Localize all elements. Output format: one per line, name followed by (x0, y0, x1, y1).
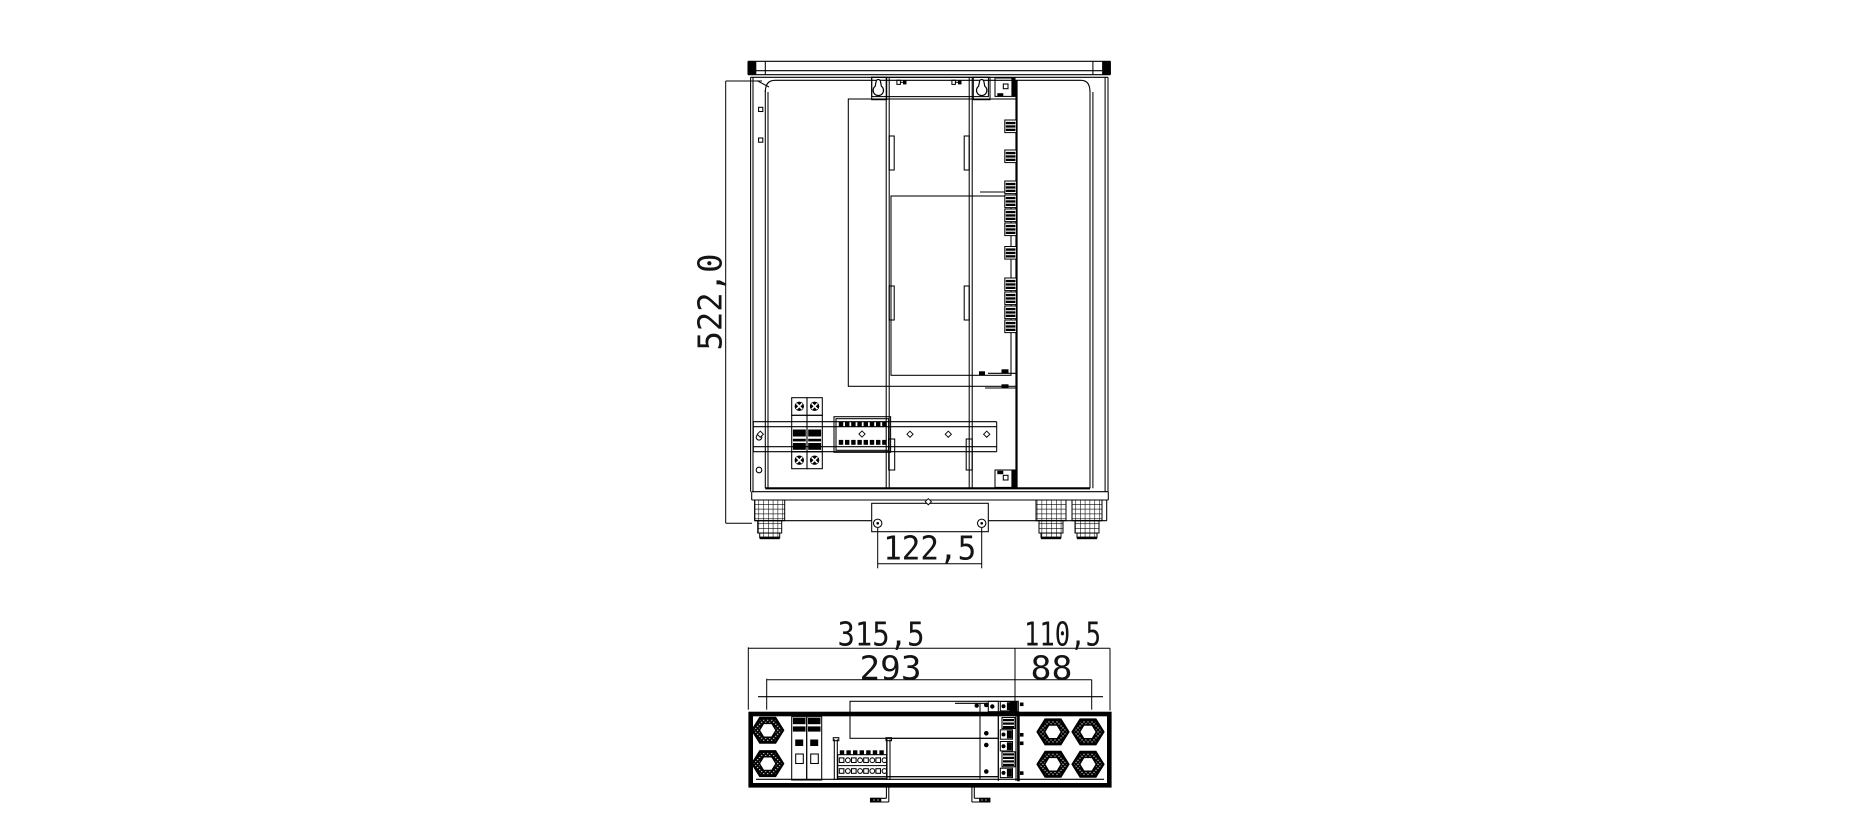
connector-stack (1002, 718, 1015, 729)
top-bar (748, 61, 1110, 74)
clip-bracket (1000, 730, 1012, 739)
foot (755, 500, 785, 539)
junction-box-bottom (995, 470, 1015, 487)
connector-block (1005, 247, 1017, 260)
top-view: 522,0 122,5 (691, 61, 1111, 568)
wall-hole-square (759, 107, 763, 111)
breaker-terminal-screw (810, 456, 819, 465)
cable-glands-left (752, 718, 783, 776)
wall-hole-square (759, 138, 763, 142)
connector-block (1005, 120, 1017, 133)
front-view: 315,5 110,5 293 88 (748, 615, 1110, 803)
clip-bracket (1000, 702, 1012, 711)
mounting-hook (870, 786, 888, 802)
rear-panel-outline (848, 99, 1016, 389)
top-bar-left-cap (748, 61, 756, 74)
cable-glands-right (1038, 720, 1104, 777)
breaker-unit (792, 398, 807, 469)
dim-label-height: 522,0 (691, 254, 730, 351)
dim-label-inner-width: 293 (860, 648, 922, 687)
breaker-terminal-screw (810, 402, 819, 411)
dim-label-gland-inner: 88 (1031, 648, 1073, 687)
clip-bracket (1000, 742, 1012, 751)
foot (1072, 500, 1102, 539)
connector-block (1005, 306, 1017, 319)
keyhole-slot-right (977, 80, 987, 96)
terminal-row-front (839, 758, 887, 763)
keyhole-slot-left (873, 80, 883, 96)
breaker-terminal-screw (795, 402, 804, 411)
cable-gland (752, 718, 783, 743)
top-bar-right-cap (1102, 61, 1110, 74)
breaker-front-unit (792, 717, 807, 780)
wall-hole-round (756, 467, 762, 473)
cad-drawing: 522,0 122,5 315,5 110,5 293 88 (0, 0, 1867, 835)
strip-center-hole (859, 431, 865, 437)
terminal-row-front (839, 769, 887, 774)
connector-block (1005, 181, 1017, 194)
terminal-row (839, 422, 887, 427)
rail-hole (945, 431, 951, 437)
rail-hole (907, 431, 913, 437)
dim-label-slot-spacing: 122,5 (883, 529, 976, 568)
bottom-mounting-plate (872, 499, 989, 532)
dim-slot-spacing: 122,5 (878, 528, 982, 568)
connector-block (1005, 195, 1017, 208)
terminal-row (839, 440, 887, 445)
circuit-breakers-top (792, 398, 823, 469)
mounting-hook (972, 786, 990, 802)
connector-block (1005, 223, 1017, 236)
connector-stack (1002, 752, 1015, 767)
terminal-caps (840, 750, 884, 754)
cable-gland (1038, 720, 1069, 745)
connector-block (1005, 209, 1017, 222)
mounting-hooks (870, 786, 990, 802)
cable-gland (1038, 752, 1069, 777)
cable-gland (752, 751, 783, 776)
connector-block (1005, 292, 1017, 305)
breaker-terminal-screw (795, 456, 804, 465)
dim-inner-width: 293 88 (767, 648, 1092, 709)
circuit-breakers-front (792, 717, 822, 780)
foot (1036, 500, 1066, 539)
drawing-canvas: 522,0 122,5 315,5 110,5 293 88 (0, 0, 1867, 835)
dim-height: 522,0 (691, 81, 770, 524)
din-rail (753, 422, 996, 452)
connector-block (1005, 150, 1017, 163)
terminal-block-front (833, 738, 891, 780)
fastener-mark (952, 80, 962, 84)
fastener-mark (897, 80, 907, 84)
cable-gland (1073, 752, 1104, 777)
rail-hole (984, 431, 990, 437)
clip-bracket (1000, 768, 1012, 777)
rail-hole (757, 431, 763, 437)
breaker-unit (807, 398, 822, 469)
cable-gland (1073, 720, 1104, 745)
breaker-front-unit (807, 717, 822, 780)
connector-column (995, 78, 1017, 488)
connector-block (1005, 320, 1017, 333)
connector-block (1005, 278, 1017, 291)
